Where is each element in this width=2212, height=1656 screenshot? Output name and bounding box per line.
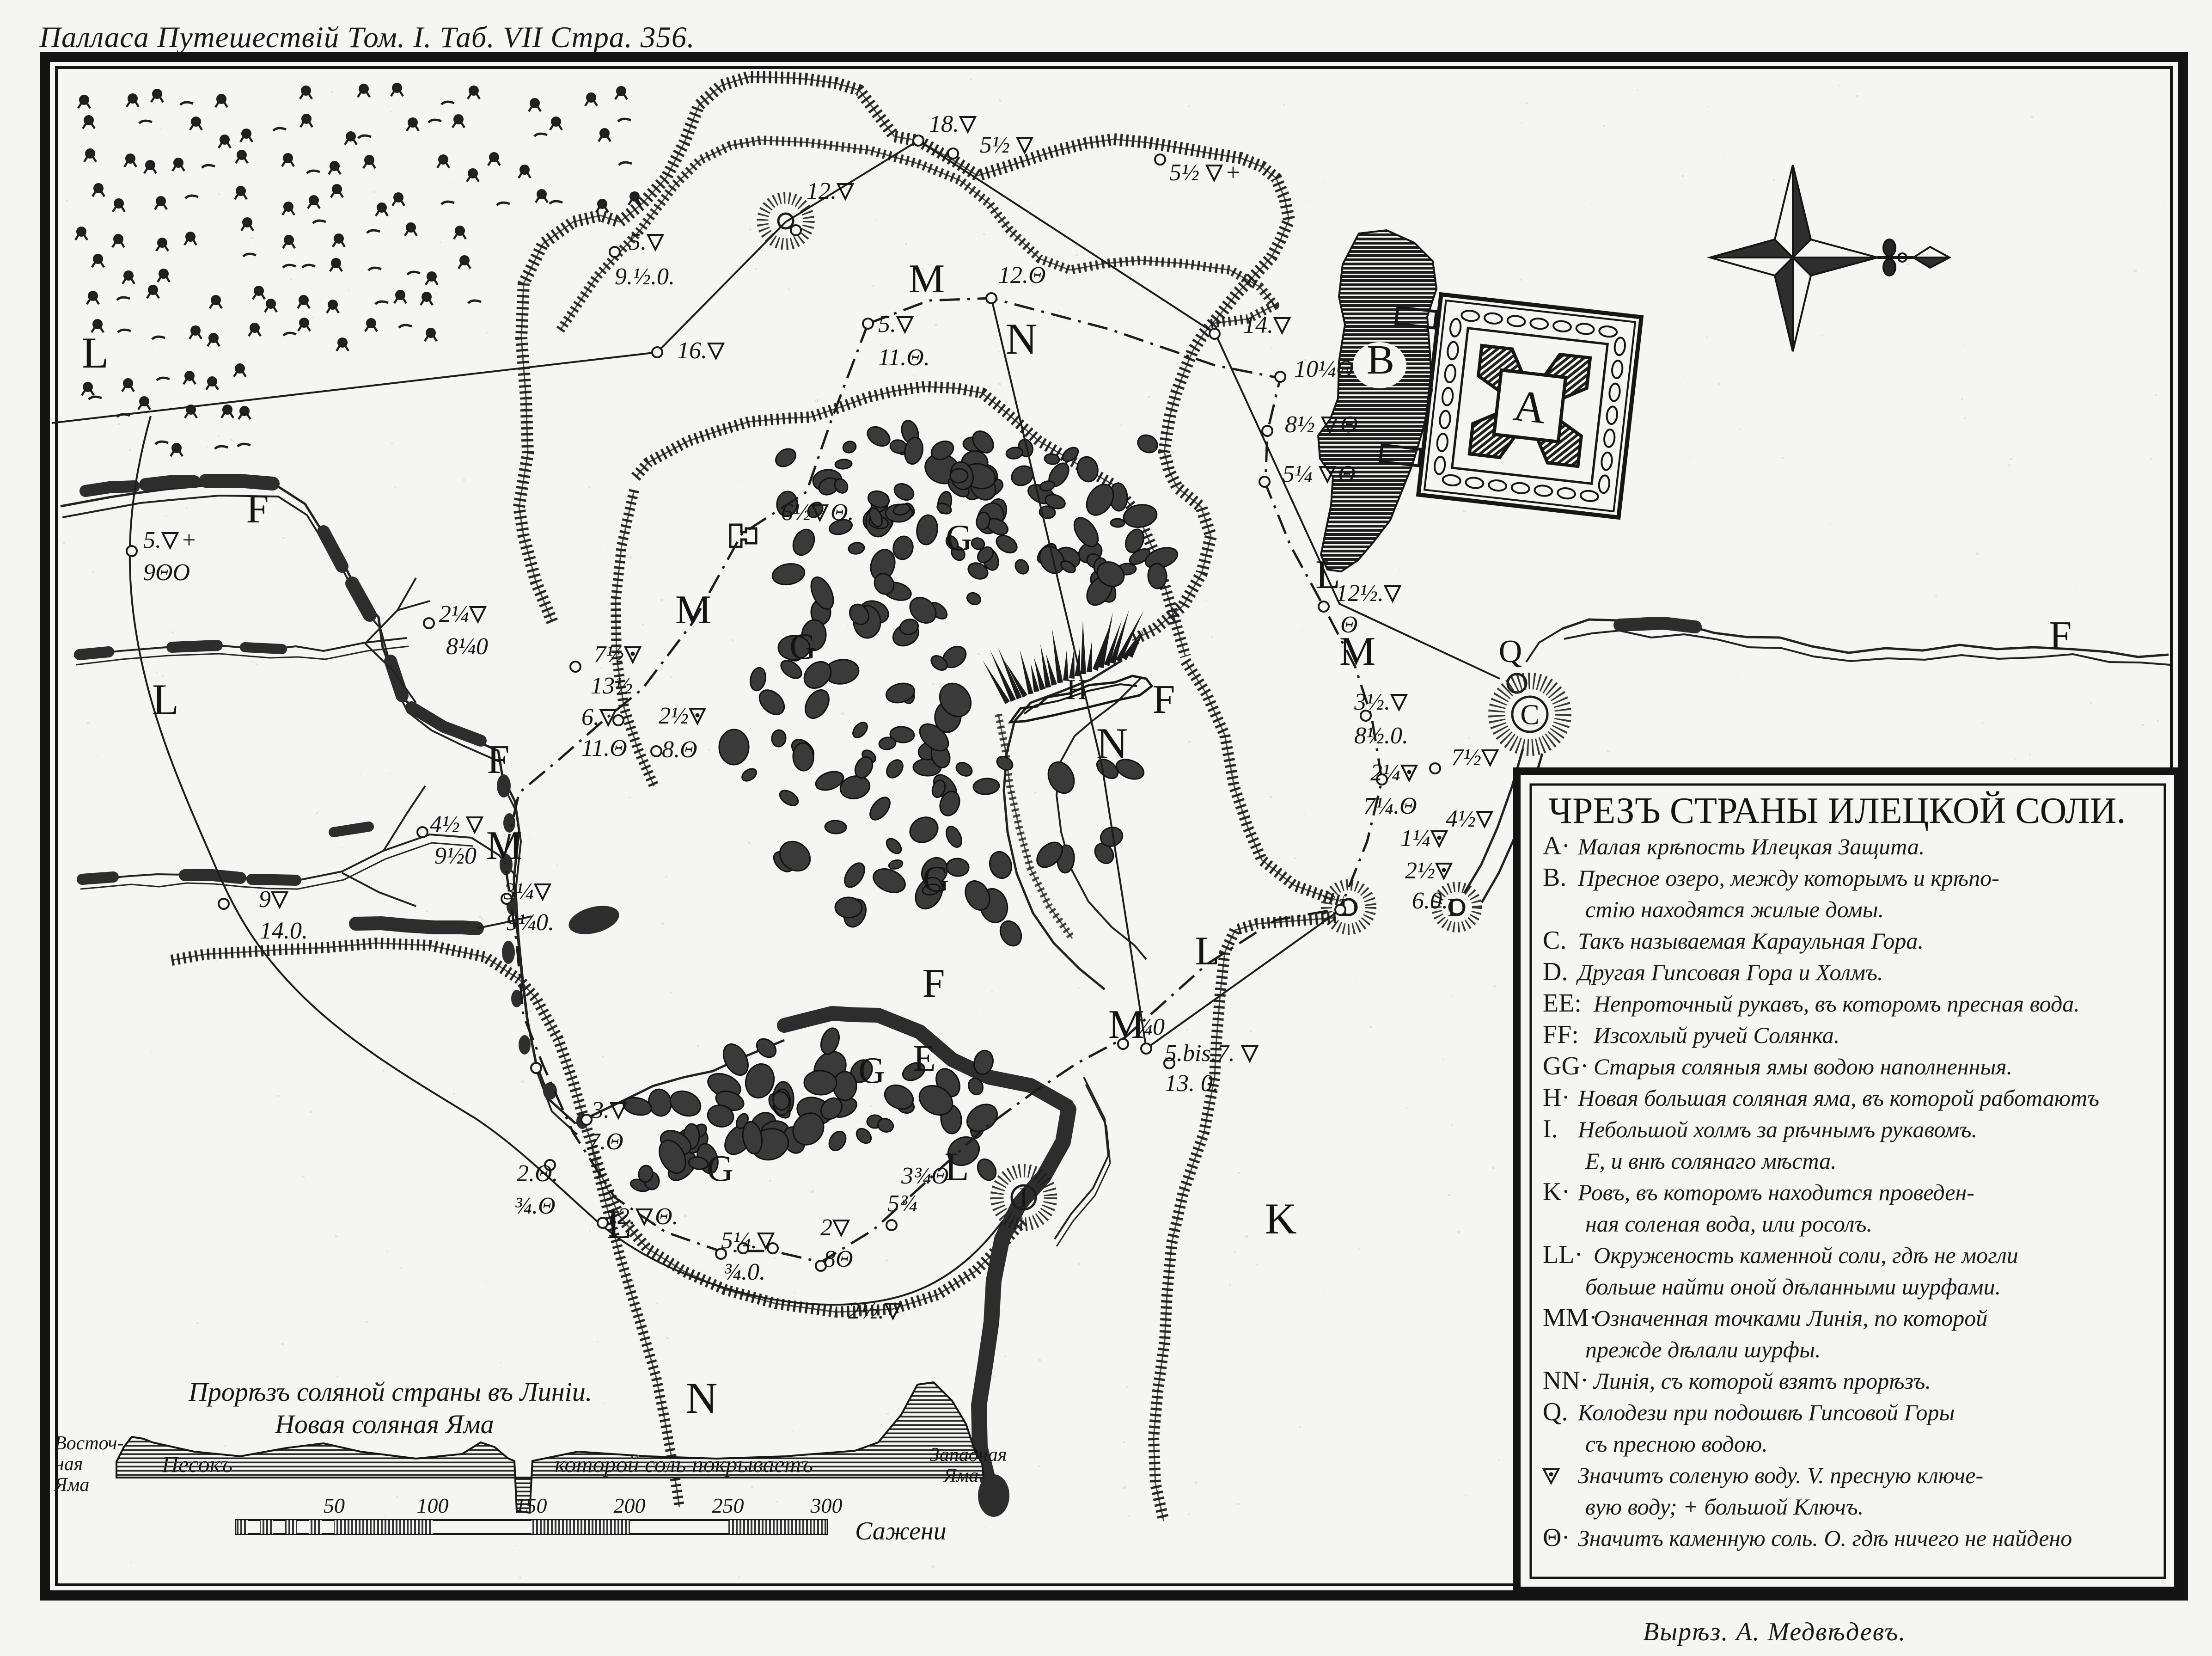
svg-text:+: +	[181, 527, 197, 553]
svg-text:5¼.: 5¼.	[721, 1227, 757, 1254]
svg-text:7½: 7½	[1451, 744, 1481, 771]
svg-text:Новая большая соляная яма, въ: Новая большая соляная яма, въ которой ра…	[1577, 1085, 2099, 1111]
svg-text:F: F	[487, 737, 510, 782]
svg-text:Q.: Q.	[1543, 1398, 1568, 1426]
svg-text:12.: 12.	[807, 178, 837, 204]
svg-text:H·: H·	[1543, 1083, 1570, 1112]
svg-text:¾.0.: ¾.0.	[723, 1259, 765, 1285]
svg-text:G: G	[707, 1148, 733, 1189]
svg-text:5.: 5.	[878, 311, 896, 337]
svg-text:D.: D.	[1543, 957, 1568, 986]
svg-text:A·: A·	[1543, 832, 1570, 860]
svg-text:Е, и внѣ солянаго мѣста.: Е, и внѣ солянаго мѣста.	[1585, 1148, 1837, 1174]
svg-text:Пресное озеро, между которымъ: Пресное озеро, между которымъ и крѣпо-	[1577, 865, 1999, 891]
svg-text:L: L	[944, 1145, 969, 1190]
svg-text:8½.0.: 8½.0.	[1354, 723, 1408, 749]
svg-text:2½: 2½	[1405, 858, 1435, 884]
svg-text:2¼: 2¼	[439, 601, 469, 627]
svg-text:L: L	[152, 675, 179, 724]
svg-text:G: G	[858, 1050, 885, 1091]
svg-text:G: G	[946, 518, 972, 558]
svg-text:9: 9	[259, 886, 271, 913]
svg-text:C: C	[1520, 699, 1539, 731]
svg-text:которой соль покрываетъ: которой соль покрываетъ	[555, 1451, 813, 1477]
svg-text:Сажени: Сажени	[855, 1517, 947, 1546]
svg-text:L: L	[1315, 552, 1340, 597]
svg-text:LL·: LL·	[1543, 1240, 1583, 1269]
svg-text:12½.: 12½.	[1336, 580, 1384, 607]
svg-text:стiю находятся жилые домы.: стiю находятся жилые домы.	[1585, 896, 1884, 922]
svg-text:7.Θ: 7.Θ	[588, 1129, 623, 1155]
svg-text:Θ: Θ	[1340, 411, 1358, 438]
svg-text:Песокъ: Песокъ	[161, 1451, 232, 1477]
svg-text:Небольшой холмъ за рѣчнымъ рук: Небольшой холмъ за рѣчнымъ рукавомъ.	[1577, 1116, 1977, 1142]
svg-text:N: N	[1096, 719, 1128, 768]
svg-text:8½: 8½	[1285, 411, 1315, 438]
svg-text:9½0: 9½0	[434, 843, 477, 869]
svg-text:50: 50	[324, 1494, 345, 1517]
svg-text:Θ: Θ	[1338, 461, 1356, 487]
svg-text:N: N	[1006, 314, 1038, 363]
svg-text:B: B	[1367, 337, 1394, 383]
svg-text:вую воду; + большой Ключъ.: вую воду; + большой Ключъ.	[1585, 1494, 1864, 1520]
svg-text:¾.Θ: ¾.Θ	[514, 1193, 556, 1219]
svg-text:9¼0.: 9¼0.	[506, 909, 554, 936]
svg-text:F: F	[2049, 613, 2072, 658]
svg-text:K·: K·	[1543, 1178, 1570, 1206]
svg-text:2½: 2½	[659, 703, 689, 729]
svg-text:Изсохлый ручей Солянка.: Изсохлый ручей Солянка.	[1593, 1022, 1839, 1048]
svg-text:I: I	[1019, 1183, 1029, 1214]
svg-text:E: E	[913, 1038, 936, 1079]
svg-text:EE:: EE:	[1543, 989, 1582, 1018]
svg-text:Яма: Яма	[54, 1474, 89, 1496]
svg-text:4½: 4½	[430, 811, 460, 838]
svg-text:F: F	[923, 961, 945, 1006]
svg-text:7½: 7½	[594, 641, 624, 668]
svg-text:Означенная точками Линiя, по к: Означенная точками Линiя, по которой	[1594, 1305, 1987, 1331]
svg-text:M: M	[675, 588, 711, 632]
svg-text:250: 250	[712, 1494, 744, 1517]
svg-text:Западная: Западная	[930, 1444, 1007, 1466]
svg-text:Новая соляная Яма: Новая соляная Яма	[275, 1409, 494, 1439]
svg-text:6.: 6.	[581, 704, 599, 730]
svg-text:8Θ: 8Θ	[824, 1246, 853, 1272]
svg-text:+: +	[1225, 159, 1241, 186]
svg-text:Окруженость каменной соли, гдѣ: Окруженость каменной соли, гдѣ не могли	[1594, 1242, 2018, 1268]
svg-text:5½: 5½	[980, 132, 1010, 158]
svg-text:13½: 13½	[591, 673, 633, 699]
svg-text:14.: 14.	[1243, 312, 1273, 338]
svg-text:11.Θ: 11.Θ	[581, 735, 627, 761]
svg-text:3¼: 3¼	[503, 878, 534, 905]
svg-text:M: M	[486, 823, 522, 868]
svg-text:5½: 5½	[1169, 159, 1199, 186]
svg-text:200: 200	[614, 1494, 646, 1517]
svg-text:8.Θ: 8.Θ	[662, 736, 697, 763]
svg-text:6½: 6½	[781, 499, 811, 526]
svg-text:5.: 5.	[629, 229, 647, 255]
svg-text:прежде дѣлали шурфы.: прежде дѣлали шурфы.	[1585, 1337, 1821, 1362]
svg-text:2.Θ.: 2.Θ.	[517, 1160, 558, 1187]
svg-text:300: 300	[810, 1494, 843, 1517]
svg-text:ная соленая вода, или росолъ.: ная соленая вода, или росолъ.	[1585, 1211, 1872, 1237]
svg-text:4½: 4½	[1446, 806, 1476, 832]
svg-text:L: L	[82, 328, 109, 377]
svg-text:M: M	[1339, 629, 1375, 674]
svg-text:Значитъ соленую воду. V. пресн: Значитъ соленую воду. V. пресную ключе-	[1578, 1462, 1983, 1488]
svg-text:5¾: 5¾	[887, 1190, 917, 1217]
svg-text:150: 150	[515, 1494, 547, 1517]
svg-text:A: A	[1511, 380, 1548, 433]
svg-text:ная: ная	[55, 1454, 83, 1475]
svg-text:Другая Гипсовая Гора и Холмъ.: Другая Гипсовая Гора и Холмъ.	[1576, 959, 1883, 985]
svg-text:Колодези при подошвѣ Гипсовой: Колодези при подошвѣ Гипсовой Горы	[1577, 1399, 1955, 1425]
svg-text:6.0.: 6.0.	[1412, 888, 1448, 914]
svg-text:Q: Q	[1499, 634, 1522, 669]
svg-text:N: N	[686, 1374, 718, 1423]
svg-text:13. 0.: 13. 0.	[1165, 1070, 1219, 1097]
svg-text:Старыя соляныя ямы водою напол: Старыя соляныя ямы водою наполненныя.	[1594, 1054, 2012, 1079]
svg-text:D: D	[1448, 894, 1466, 922]
svg-text:2: 2	[820, 1214, 832, 1241]
svg-text:Восточ-: Восточ-	[55, 1433, 124, 1454]
svg-text:100: 100	[417, 1494, 449, 1517]
svg-text:I.: I.	[1543, 1115, 1558, 1143]
svg-text:3.: 3.	[591, 1097, 610, 1123]
svg-text:10¼Θ: 10¼Θ	[1294, 356, 1354, 382]
svg-text:L: L	[607, 1202, 632, 1247]
svg-text:7¼.Θ: 7¼.Θ	[1363, 793, 1417, 819]
svg-text:2¼: 2¼	[1370, 760, 1400, 786]
svg-text:Паллаcа Путешествiй Том. I: Паллаcа Путешествiй Том. I. Таб. VII Стр…	[39, 21, 695, 54]
svg-text:больше найти оной дѣланными шу: больше найти оной дѣланными шурфами.	[1585, 1274, 2001, 1300]
svg-text:8¼0: 8¼0	[446, 633, 488, 660]
svg-text:16.: 16.	[677, 337, 707, 364]
svg-text:5.: 5.	[143, 527, 161, 553]
svg-text:11.Θ.: 11.Θ.	[878, 344, 930, 371]
svg-text:2½.: 2½.	[848, 1298, 884, 1324]
svg-text:Яма: Яма	[943, 1465, 978, 1486]
svg-text:G: G	[789, 626, 816, 667]
svg-text:3¾Θ: 3¾Θ	[901, 1163, 949, 1189]
svg-text:F: F	[246, 487, 269, 532]
svg-text:9.½.0.: 9.½.0.	[615, 264, 675, 290]
svg-text:B.: B.	[1543, 863, 1566, 892]
svg-text:14.0.: 14.0.	[260, 918, 308, 944]
svg-text:Прорѣзъ соляной страны въ: Прорѣзъ соляной страны въ Линiи.	[188, 1377, 592, 1407]
svg-text:1¼: 1¼	[1400, 825, 1430, 852]
svg-text:L: L	[1195, 929, 1220, 974]
svg-text:Ровъ, въ которомъ находится пр: Ровъ, въ которомъ находится проведен-	[1577, 1179, 1974, 1205]
svg-text:Такъ называемая Караульная Гор: Такъ называемая Караульная Гора.	[1578, 928, 1924, 954]
svg-text:Θ.: Θ.	[655, 1203, 678, 1230]
svg-text:MM·: MM·	[1543, 1303, 1597, 1332]
svg-text:Вырѣз. А. Медвѣдевъ.: Вырѣз. А. Медвѣдевъ.	[1643, 1618, 1906, 1646]
svg-text:5.bis.7.: 5.bis.7.	[1165, 1040, 1235, 1067]
svg-text:Малая крѣпость Илецкая Защита.: Малая крѣпость Илецкая Защита.	[1577, 834, 1925, 859]
svg-text:3½.: 3½.	[1354, 689, 1390, 715]
svg-text:съ пресною водою.: съ пресною водою.	[1585, 1431, 1768, 1457]
svg-text:Непроточный рукавъ, въ котором: Непроточный рукавъ, въ которомъ пресная …	[1593, 991, 2080, 1017]
svg-text:12.Θ: 12.Θ	[998, 262, 1046, 288]
svg-text:ЧРЕЗЪ СТРАНЫ ИЛЕЦКОЙ СОЛИ.: ЧРЕЗЪ СТРАНЫ ИЛЕЦКОЙ СОЛИ.	[1548, 791, 2126, 831]
svg-text:F: F	[1153, 677, 1175, 722]
svg-text:Значитъ каменную соль. O. гдѣ: Значитъ каменную соль. O. гдѣ ничего не …	[1578, 1525, 2072, 1551]
svg-text:Линiя, съ которой взятъ прорѣз: Линiя, съ которой взятъ прорѣзъ.	[1593, 1368, 1931, 1394]
svg-text:GG·: GG·	[1543, 1052, 1589, 1080]
svg-text:5¼: 5¼	[1283, 461, 1313, 487]
svg-text:M: M	[909, 257, 945, 301]
svg-text:M: M	[1108, 1002, 1144, 1047]
svg-text:Θ·: Θ·	[1543, 1523, 1570, 1552]
svg-text:G: G	[923, 859, 949, 900]
svg-text:Θ.: Θ.	[831, 499, 854, 526]
svg-text:9ΘO: 9ΘO	[143, 559, 190, 586]
svg-text:18.: 18.	[929, 111, 959, 137]
svg-text:NN·: NN·	[1543, 1366, 1589, 1395]
svg-text:K: K	[1265, 1194, 1297, 1243]
svg-text:FF:: FF:	[1543, 1020, 1579, 1049]
svg-text:C.: C.	[1543, 926, 1566, 955]
